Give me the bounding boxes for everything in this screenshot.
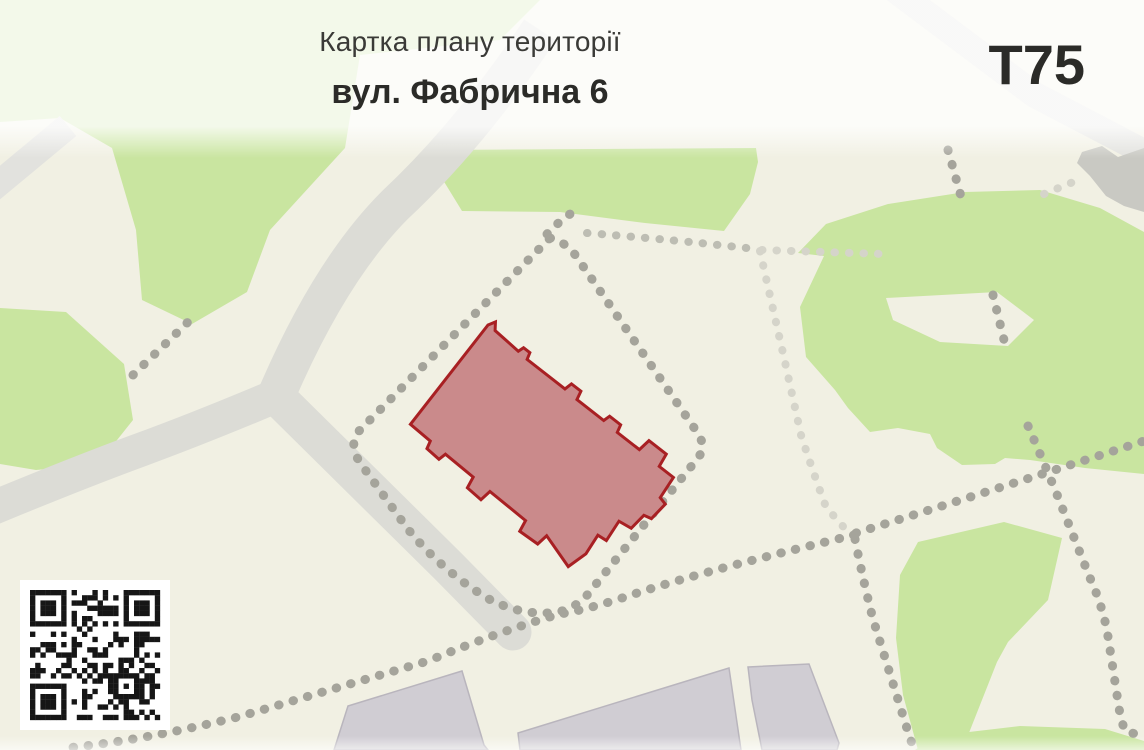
territory-code: Т75 — [989, 34, 1086, 96]
qr-code — [20, 580, 170, 730]
map-canvas — [0, 0, 1144, 750]
page-subtitle: вул. Фабрична 6 — [150, 74, 790, 111]
page-title: Картка плану території — [150, 26, 790, 58]
header: Картка плану території вул. Фабрична 6 — [150, 26, 790, 112]
territory-plan-card: Картка плану території вул. Фабрична 6 Т… — [0, 0, 1144, 750]
